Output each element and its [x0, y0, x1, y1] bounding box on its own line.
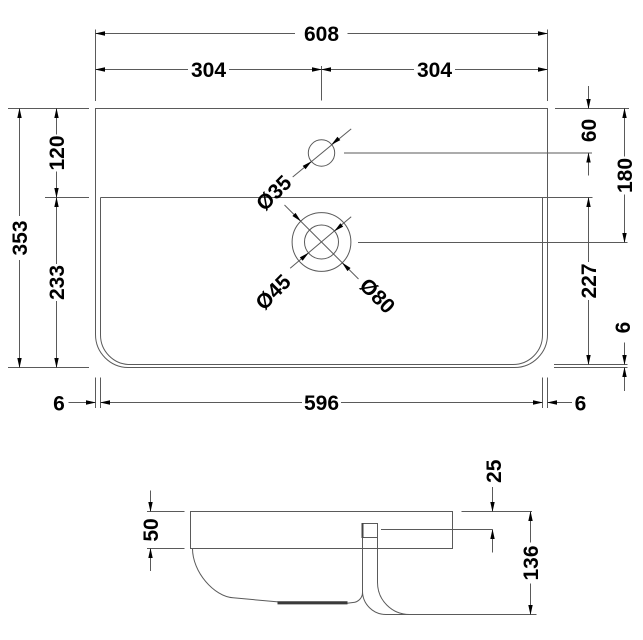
svg-text:120: 120	[46, 135, 69, 170]
svg-text:6: 6	[575, 393, 587, 416]
svg-text:136: 136	[520, 545, 543, 580]
svg-text:304: 304	[417, 59, 452, 82]
svg-text:Ø45: Ø45	[251, 270, 296, 315]
svg-text:Ø35: Ø35	[252, 171, 297, 216]
svg-text:233: 233	[46, 265, 69, 300]
svg-text:227: 227	[578, 263, 601, 298]
svg-text:Ø80: Ø80	[355, 274, 399, 318]
svg-text:608: 608	[304, 23, 339, 46]
svg-text:180: 180	[614, 158, 637, 193]
svg-text:50: 50	[140, 518, 163, 541]
svg-text:304: 304	[191, 59, 226, 82]
svg-text:6: 6	[612, 322, 635, 334]
svg-text:353: 353	[9, 220, 32, 255]
svg-text:60: 60	[578, 119, 601, 142]
svg-text:6: 6	[53, 393, 65, 416]
svg-text:596: 596	[304, 392, 339, 415]
svg-text:25: 25	[483, 459, 506, 483]
